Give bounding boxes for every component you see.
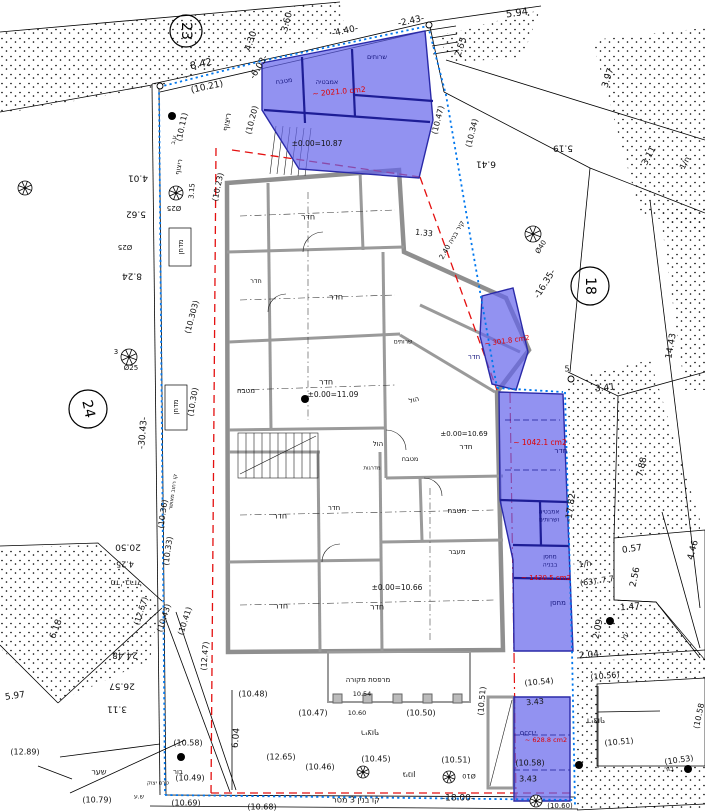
plan-label: 3.11 bbox=[107, 704, 127, 714]
plan-label: (10.21) bbox=[190, 79, 224, 96]
plan-label: -16.35- bbox=[533, 268, 559, 301]
highlight-top-building bbox=[262, 31, 433, 178]
plan-label: 26.57 bbox=[109, 681, 135, 691]
plan-label: שרותים bbox=[367, 53, 387, 61]
plan-label: טרם יצוק bbox=[147, 781, 169, 787]
plan-label: ±0.00=10.69 bbox=[440, 430, 487, 438]
plan-label: מעבר bbox=[448, 548, 465, 556]
plan-label: ע.ב bbox=[170, 135, 179, 146]
plan-label: חדר bbox=[554, 446, 567, 455]
plan-label: (10.51) bbox=[441, 756, 470, 765]
plan-label: שרותים bbox=[394, 339, 413, 346]
plan-label: (10.50) bbox=[406, 709, 435, 718]
survey-dot bbox=[606, 617, 614, 625]
plan-label: ריצוף bbox=[587, 717, 605, 726]
plan-label: Ø25 bbox=[167, 204, 181, 212]
plan-label: מד' ברזל bbox=[111, 579, 142, 588]
plan-label: ריצוף bbox=[174, 158, 185, 175]
plan-label: 5.19 bbox=[553, 143, 573, 153]
plan-label: (10.303) bbox=[183, 299, 201, 334]
plan-label: חדר bbox=[370, 603, 384, 612]
plan-label: חדר bbox=[468, 353, 480, 361]
plan-label: (10.34) bbox=[464, 118, 480, 148]
plan-label: -2.43- bbox=[397, 14, 425, 29]
plan-label: חדר bbox=[301, 213, 315, 222]
plan-label: 2.04 bbox=[579, 650, 600, 662]
plan-label: (10.51) bbox=[476, 686, 488, 716]
plan-label: Ø25 bbox=[124, 364, 138, 372]
plan-label: 10.60 bbox=[348, 709, 367, 717]
plan-label: (10.20) bbox=[244, 105, 260, 135]
plan-label: Ø25 bbox=[118, 243, 132, 251]
plan-label: (10.48) bbox=[238, 690, 267, 699]
plan-label: (12.65) bbox=[266, 753, 295, 762]
plan-label: חדר bbox=[273, 512, 287, 521]
highlight-bottom-shed bbox=[514, 697, 570, 801]
plan-label: 3.41 bbox=[595, 382, 616, 394]
tree-icon bbox=[169, 186, 183, 200]
plan-label: (10.69) bbox=[171, 799, 200, 808]
plot-number: 18 bbox=[582, 277, 598, 295]
plan-label: מחסן bbox=[543, 554, 557, 561]
plan-label: ריצוף bbox=[221, 112, 233, 132]
survey-dot bbox=[684, 765, 692, 773]
plan-label: 1.47 bbox=[620, 602, 641, 614]
plan-label: ריצוף bbox=[361, 729, 379, 738]
plan-label: ש.ע bbox=[134, 794, 144, 801]
plan-label: 1.33 bbox=[415, 228, 434, 239]
plan-label: 24.48 bbox=[112, 650, 138, 660]
tree-icon bbox=[525, 226, 541, 242]
plan-label: (12.47) bbox=[199, 641, 211, 671]
plan-label: (10.68) bbox=[247, 803, 276, 812]
plan-label: (10.47) bbox=[298, 709, 327, 718]
plan-label: 5.62 bbox=[126, 209, 146, 219]
plan-label: 5.97 bbox=[4, 690, 25, 703]
plan-label: קו רחוב מאושר bbox=[168, 474, 179, 511]
plan-label: שער bbox=[91, 768, 107, 777]
plan-label: ±0.00=10.66 bbox=[372, 583, 423, 592]
plan-label: חדר bbox=[328, 504, 340, 512]
plan-label: 4.01 bbox=[128, 173, 148, 183]
plan-label: מטבח bbox=[402, 455, 419, 463]
plan-label: 10.54 bbox=[353, 690, 372, 698]
plan-label: ~ 628.8 cm2 bbox=[525, 736, 567, 744]
plan-label: חדר bbox=[274, 602, 288, 611]
plan-label: 20.50 bbox=[115, 542, 141, 552]
plan-label: חדר bbox=[319, 378, 333, 387]
main-building-outline bbox=[227, 170, 529, 652]
plan-label: (10.46) bbox=[305, 763, 334, 772]
plan-label: -18.00- bbox=[442, 794, 474, 804]
plan-label: (10.49) bbox=[175, 774, 204, 783]
plan-label: (10.30) bbox=[186, 387, 200, 417]
plan-label: בבניה bbox=[543, 562, 558, 569]
plan-label: 8.24 bbox=[122, 271, 142, 281]
plan-label: 4.25 bbox=[116, 560, 134, 569]
plan-label: מחסן bbox=[550, 599, 566, 607]
floor-plan-svg: 231824 3.60-4.40--2.43-5.942.554.30-6.03… bbox=[0, 0, 705, 812]
plan-label: 6.41 bbox=[476, 159, 496, 169]
boundary-point bbox=[568, 376, 574, 382]
plan-label: ח/1 bbox=[578, 559, 592, 570]
plan-label: (10.45) bbox=[361, 755, 390, 764]
plan-label: ושרותים bbox=[539, 517, 560, 524]
survey-dot bbox=[168, 112, 176, 120]
plan-label: מדחן bbox=[172, 399, 180, 414]
plan-label: קיר בניה 2.40 bbox=[438, 219, 467, 261]
tree-icon bbox=[357, 766, 369, 778]
plan-label: מדרגות bbox=[363, 466, 380, 472]
boundary-point bbox=[426, 22, 432, 28]
plan-label: מדחן bbox=[177, 239, 185, 254]
plan-label: 3.43 bbox=[519, 775, 537, 784]
plan-label: -30.43- bbox=[137, 417, 150, 450]
plan-label: (12.89) bbox=[10, 748, 39, 757]
tree-icon bbox=[121, 349, 137, 365]
plan-label: (10.54) bbox=[524, 676, 554, 688]
plan-label: (10.79) bbox=[82, 796, 111, 805]
plot-number: 23 bbox=[178, 22, 194, 40]
plan-label: (10.58) bbox=[515, 759, 544, 768]
plan-label: מרפסת מקורה bbox=[346, 676, 391, 684]
plan-label: (10.58) bbox=[173, 739, 202, 748]
plan-label: 3 bbox=[114, 348, 118, 356]
plan-label: ~ 1430.5 cm2 bbox=[521, 574, 571, 582]
plot-number: 24 bbox=[78, 399, 97, 420]
plan-label: ±0.00=10.87 bbox=[292, 139, 343, 148]
plan-label: ±0.00=11.09 bbox=[308, 390, 359, 399]
plan-label: Ø10 bbox=[462, 772, 475, 780]
tree-icon bbox=[443, 771, 455, 783]
neighbor-plot-bottom-right bbox=[597, 678, 705, 766]
tree-icon bbox=[18, 181, 32, 195]
plan-label: אמבטיה bbox=[316, 78, 338, 86]
plan-label: מטבח bbox=[237, 387, 255, 395]
plan-label: ~ 1042.1 cm2 bbox=[513, 438, 567, 447]
plan-label: מטבח bbox=[447, 506, 466, 515]
plan-label: אמבטיה bbox=[539, 509, 560, 516]
plan-label: 3.43 bbox=[526, 697, 545, 708]
plan-label: חדר bbox=[459, 442, 472, 451]
plan-label: חדר bbox=[329, 293, 343, 302]
plan-label: 6.04 bbox=[231, 727, 243, 748]
plan-label: קו בנין 3 מטר bbox=[332, 796, 380, 805]
plan-label: בור bbox=[664, 764, 675, 773]
plan-label: (10.23) bbox=[211, 172, 226, 202]
plan-label: הול bbox=[373, 440, 383, 448]
survey-dot bbox=[575, 761, 583, 769]
plan-label: (10.36) bbox=[157, 499, 170, 529]
plan-label: חדר bbox=[250, 277, 261, 285]
plan-label: (10.60) bbox=[547, 802, 573, 810]
plan-label: 5 bbox=[564, 365, 569, 374]
survey-dot bbox=[177, 753, 185, 761]
boundary-point bbox=[157, 83, 163, 89]
tree-icon bbox=[530, 795, 542, 807]
plan-label: 3.15 bbox=[187, 183, 196, 199]
floor-plan-page: 231824 3.60-4.40--2.43-5.942.554.30-6.03… bbox=[0, 0, 705, 812]
plan-label: גינון bbox=[402, 771, 415, 780]
highlight-right-strip bbox=[499, 392, 573, 651]
